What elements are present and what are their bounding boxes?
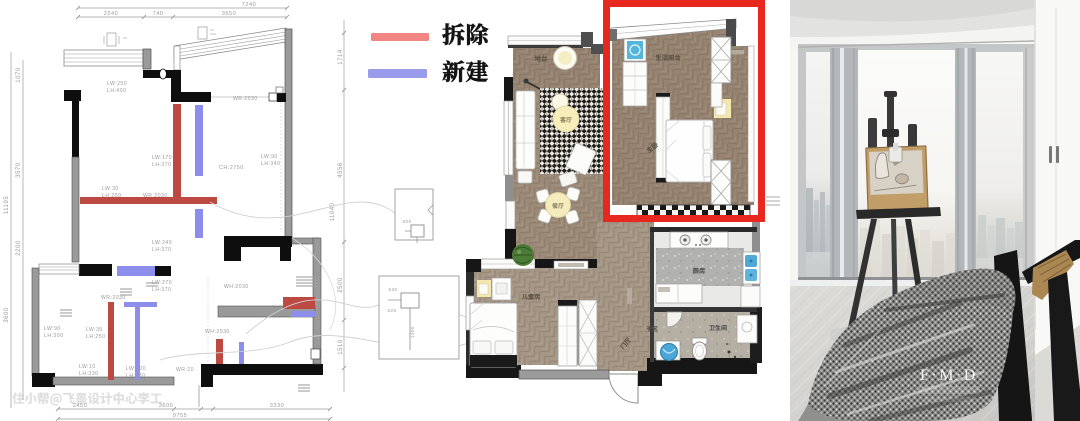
svg-text:LH:370: LH:370 bbox=[152, 162, 171, 168]
svg-text:4556: 4556 bbox=[338, 162, 344, 178]
svg-text:LH:250: LH:250 bbox=[102, 193, 121, 199]
svg-text:600: 600 bbox=[402, 219, 411, 224]
svg-text:2500: 2500 bbox=[338, 277, 344, 293]
svg-text:LH:330: LH:330 bbox=[79, 371, 98, 377]
svg-text:9755: 9755 bbox=[173, 413, 187, 419]
svg-text:WR:2030: WR:2030 bbox=[101, 295, 126, 301]
svg-text:LH:330: LH:330 bbox=[126, 373, 145, 379]
svg-text:LH:370: LH:370 bbox=[152, 287, 171, 293]
svg-text:2450: 2450 bbox=[73, 403, 87, 409]
svg-text:LH:400: LH:400 bbox=[107, 88, 126, 94]
svg-text:LW:90: LW:90 bbox=[261, 154, 278, 160]
svg-text:630: 630 bbox=[388, 287, 397, 292]
svg-text:2200: 2200 bbox=[16, 240, 22, 256]
svg-text:CH:2750: CH:2750 bbox=[219, 165, 244, 171]
svg-text:F·M·D: F·M·D bbox=[920, 367, 978, 384]
svg-text:WR:20: WR:20 bbox=[176, 367, 194, 373]
svg-text:LH:340: LH:340 bbox=[261, 161, 280, 167]
svg-text:WH:2030: WH:2030 bbox=[224, 284, 249, 290]
svg-text:WH:2030: WH:2030 bbox=[205, 329, 230, 335]
svg-text:LW:35: LW:35 bbox=[86, 327, 103, 333]
svg-text:740: 740 bbox=[153, 11, 164, 17]
svg-text:3330: 3330 bbox=[270, 403, 284, 409]
svg-text:3600: 3600 bbox=[4, 307, 10, 323]
svg-text:1305: 1305 bbox=[410, 326, 415, 338]
svg-text:7240: 7240 bbox=[242, 2, 256, 8]
svg-text:LW:240: LW:240 bbox=[152, 240, 172, 246]
svg-text:WR:2030: WR:2030 bbox=[233, 96, 258, 102]
svg-text:LH:370: LH:370 bbox=[152, 247, 171, 253]
svg-text:LW:10: LW:10 bbox=[79, 364, 96, 370]
svg-text:3570: 3570 bbox=[16, 162, 22, 178]
svg-text:LW:90: LW:90 bbox=[44, 326, 61, 332]
svg-text:1070: 1070 bbox=[16, 67, 22, 83]
svg-text:1510: 1510 bbox=[338, 339, 344, 355]
svg-text:LH:250: LH:250 bbox=[86, 334, 105, 340]
svg-text:LW:170: LW:170 bbox=[152, 155, 172, 161]
svg-text:LW:100: LW:100 bbox=[126, 366, 146, 372]
svg-text:1714: 1714 bbox=[338, 49, 344, 65]
svg-text:3650: 3650 bbox=[222, 11, 236, 17]
svg-text:LW:30: LW:30 bbox=[102, 186, 119, 192]
svg-text:LW:250: LW:250 bbox=[107, 81, 127, 87]
svg-text:525: 525 bbox=[387, 308, 396, 313]
svg-text:2240: 2240 bbox=[104, 11, 118, 17]
svg-text:11195: 11195 bbox=[4, 196, 10, 214]
svg-text:3600: 3600 bbox=[159, 403, 173, 409]
svg-text:LH:300: LH:300 bbox=[44, 333, 63, 339]
svg-text:WR:2030: WR:2030 bbox=[143, 193, 168, 199]
